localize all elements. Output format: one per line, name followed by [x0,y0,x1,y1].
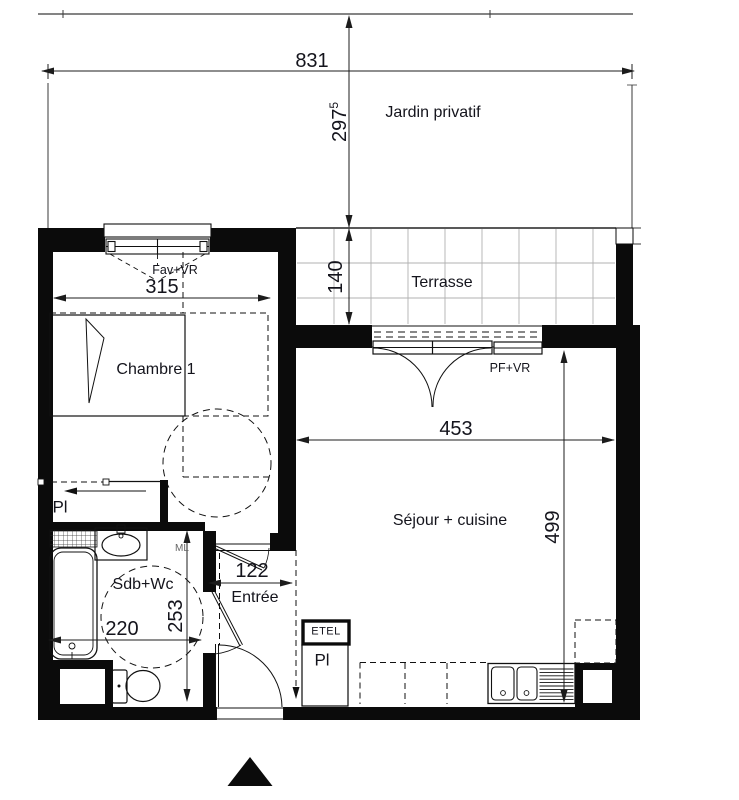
appliance-slot [575,620,616,663]
flow-arrow-down [293,687,300,699]
dim-label-499: 499 [543,510,563,543]
room-label-sejour: Séjour + cuisine [393,513,507,529]
dim-label-297-5: 2975 [328,102,350,142]
label-window-fav-vr: Fav+VR [152,264,198,277]
room-label-terrasse: Terrasse [411,275,472,291]
dim-label-220: 220 [105,619,138,639]
dim-label-140: 140 [326,260,346,293]
placard-chambre [38,479,160,495]
toilet [112,670,160,703]
north-arrow [228,757,273,786]
wall-ticks [633,228,641,244]
dim-label-831: 831 [295,51,328,71]
dim-label-315: 315 [145,277,178,297]
label-ml: ML [175,544,189,554]
dim-label-453: 453 [439,419,472,439]
dim-label-253: 253 [166,599,186,632]
floor-plan-drawing [0,0,739,800]
room-label-entree: Entrée [231,590,278,606]
room-label-chambre: Chambre 1 [116,362,195,378]
kitchen-sink [488,664,575,704]
label-placard-sejour: Pl [314,652,329,669]
label-placard-chambre: Pl [52,499,67,516]
bath-shelf-hatch [50,530,97,547]
room-label-jardin: Jardin privatif [385,105,480,121]
label-etel: ETEL [311,627,341,638]
dim-label-122: 122 [235,561,268,581]
floor-plan: Jardin privatif Terrasse Chambre 1 Séjou… [0,0,739,800]
label-door-pf-vr: PF+VR [490,362,531,375]
door-entrance [216,644,285,720]
room-label-sdb: Sdb+Wc [113,577,174,593]
kitchen-counter [360,663,488,705]
